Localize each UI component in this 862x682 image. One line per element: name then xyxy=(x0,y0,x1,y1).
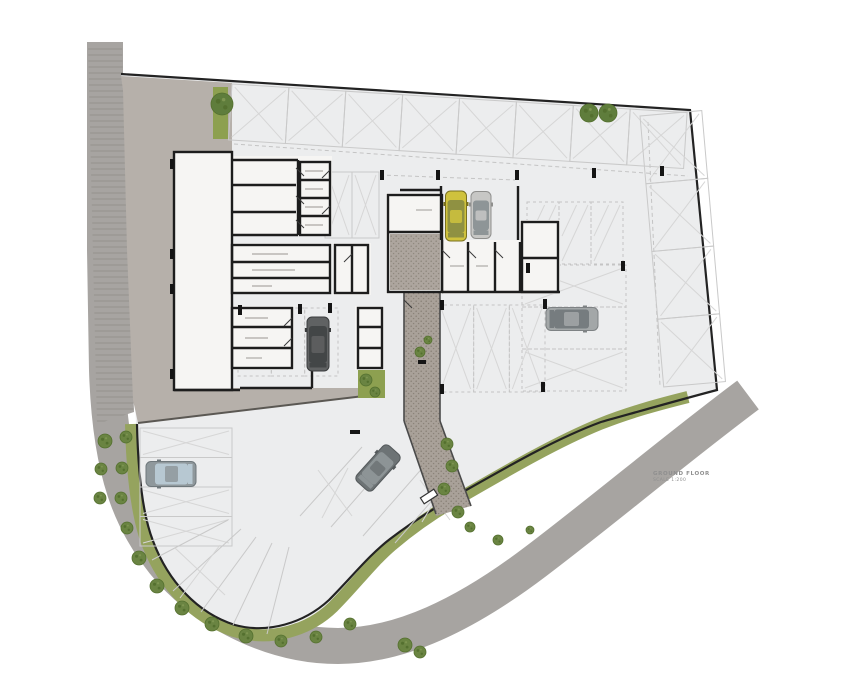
column-marker xyxy=(592,168,596,178)
bush-icon-crown xyxy=(94,492,106,504)
bush-icon xyxy=(441,438,453,450)
bush-icon xyxy=(493,535,503,545)
bush-icon-texture xyxy=(367,381,369,383)
column-marker xyxy=(621,261,625,271)
bush-icon-texture xyxy=(459,513,461,515)
column-marker xyxy=(440,300,444,310)
car-mirror xyxy=(491,203,494,207)
bush-icon-highlight xyxy=(157,582,159,584)
bush-icon xyxy=(398,638,412,652)
bush-icon-crown xyxy=(310,631,322,643)
bush-icon-texture xyxy=(124,525,127,528)
column-marker xyxy=(350,430,360,434)
bush-icon-texture xyxy=(278,638,281,641)
bush-icon xyxy=(132,551,146,565)
bush-icon xyxy=(239,629,253,643)
car xyxy=(546,306,598,333)
bush-icon xyxy=(116,462,128,474)
car-roof xyxy=(564,312,579,326)
car xyxy=(305,317,331,371)
bush-icon-highlight xyxy=(126,434,128,436)
tree-icon-highlight xyxy=(222,98,226,102)
tree-icon-texture xyxy=(584,109,588,113)
bush-icon-highlight xyxy=(452,463,454,465)
column-marker xyxy=(515,170,519,180)
bush-icon-texture xyxy=(372,390,374,392)
bush-icon-texture xyxy=(97,495,100,498)
bush-icon-highlight xyxy=(139,554,141,556)
column-marker xyxy=(418,360,426,364)
bush-icon-texture xyxy=(123,469,125,471)
bush-icon-highlight xyxy=(281,638,283,640)
car-roof xyxy=(450,210,462,223)
car-rear-glass xyxy=(448,233,464,238)
bush-icon-crown xyxy=(150,579,164,593)
bush-icon xyxy=(98,434,112,448)
car-rear-glass xyxy=(188,464,193,484)
bush-icon-texture xyxy=(495,538,497,540)
bush-icon xyxy=(446,460,458,472)
bush-icon-highlight xyxy=(405,641,407,643)
tree-icon-texture xyxy=(216,99,221,104)
tree-icon-crown xyxy=(599,104,617,122)
bush-icon-highlight xyxy=(122,465,124,467)
bush-icon-texture xyxy=(317,638,319,640)
bush-icon-texture xyxy=(158,587,161,590)
bush-icon-texture xyxy=(242,633,245,636)
car-roof xyxy=(165,466,178,482)
bush-icon-texture xyxy=(153,583,156,586)
car-mirror xyxy=(444,202,447,206)
bush-icon-texture xyxy=(213,625,216,628)
column-marker xyxy=(526,263,530,273)
bush-icon-texture xyxy=(528,528,530,530)
bush-icon-highlight xyxy=(182,604,184,606)
bush-icon-crown xyxy=(526,526,534,534)
bush-icon-texture xyxy=(102,470,104,472)
bush-icon-texture xyxy=(122,499,124,501)
column-marker xyxy=(170,159,174,169)
car-rear-glass xyxy=(474,231,489,236)
bush-icon-crown xyxy=(98,434,112,448)
bush-icon-crown xyxy=(95,463,107,475)
bush-icon-highlight xyxy=(420,649,422,651)
bush-icon-crown xyxy=(438,483,450,495)
bush-icon-texture xyxy=(471,528,473,530)
bush-icon xyxy=(175,601,189,615)
tree-icon-texture xyxy=(609,114,613,118)
bush-icon-texture xyxy=(106,442,109,445)
bush-icon-crown xyxy=(452,506,464,518)
car-mirror xyxy=(329,328,332,332)
bush-icon xyxy=(115,492,127,504)
bush-icon-crown xyxy=(398,638,412,652)
column-marker xyxy=(436,170,440,180)
car-rear-glass xyxy=(310,363,327,368)
bush-icon-texture xyxy=(428,340,430,342)
bush-icon-texture xyxy=(282,642,284,644)
column-marker xyxy=(170,249,174,259)
column-marker xyxy=(238,305,242,315)
car xyxy=(444,191,469,241)
bush-icon xyxy=(121,522,133,534)
bush-icon-crown xyxy=(465,522,475,532)
bush-icon-texture xyxy=(417,350,419,352)
stair-core xyxy=(390,234,440,290)
bush-icon-crown xyxy=(239,629,253,643)
bush-icon xyxy=(360,374,372,386)
bush-icon-highlight xyxy=(101,466,103,468)
bush-icon-crown xyxy=(120,431,132,443)
bush-icon-texture xyxy=(455,509,458,512)
car xyxy=(469,192,493,239)
bush-icon-highlight xyxy=(366,377,368,379)
bush-icon-crown xyxy=(414,646,426,658)
car-roof xyxy=(312,336,325,353)
bush-icon-texture xyxy=(183,609,186,612)
bush-icon-crown xyxy=(121,522,133,534)
tree-icon xyxy=(599,104,617,122)
bush-icon-crown xyxy=(344,618,356,630)
car-mirror xyxy=(157,486,161,489)
car-roof xyxy=(476,211,487,221)
bush-icon-crown xyxy=(446,460,458,472)
bush-icon-texture xyxy=(208,621,211,624)
plan-annotation: GROUND FLOOR SCALE 1:200 xyxy=(653,470,710,485)
building-room xyxy=(355,306,384,370)
bush-icon-highlight xyxy=(375,389,377,391)
bush-icon-texture xyxy=(140,559,143,562)
bush-icon-texture xyxy=(135,555,138,558)
tree-icon-texture xyxy=(590,114,594,118)
tree-icon-crown xyxy=(580,104,598,122)
bush-icon-highlight xyxy=(127,525,129,527)
bush-icon-texture xyxy=(441,486,444,489)
bush-icon-texture xyxy=(119,465,122,468)
bush-icon-texture xyxy=(127,438,129,440)
bush-icon-texture xyxy=(448,445,450,447)
bush-icon-crown xyxy=(415,347,425,357)
bush-icon-texture xyxy=(178,605,181,608)
column-marker xyxy=(543,299,547,309)
bush-icon-texture xyxy=(406,646,409,649)
bush-icon-highlight xyxy=(447,441,449,443)
bush-icon-texture xyxy=(101,438,104,441)
bush-icon xyxy=(438,483,450,495)
bush-icon-texture xyxy=(421,353,423,355)
bush-icon-texture xyxy=(313,634,316,637)
bush-icon-crown xyxy=(441,438,453,450)
bush-icon-highlight xyxy=(316,634,318,636)
bush-icon-crown xyxy=(205,617,219,631)
bush-icon-highlight xyxy=(212,620,214,622)
tree-icon-crown xyxy=(211,93,233,115)
building-room xyxy=(232,156,332,236)
bush-icon xyxy=(120,431,132,443)
bush-icon-texture xyxy=(351,625,353,627)
building-room xyxy=(174,152,232,390)
bush-icon-highlight xyxy=(350,621,352,623)
tree-icon-highlight xyxy=(608,108,611,111)
bush-icon-texture xyxy=(347,621,350,624)
bush-icon-texture xyxy=(363,377,366,380)
tree-icon-texture xyxy=(603,109,607,113)
bush-icon-texture xyxy=(449,463,452,466)
bush-icon-highlight xyxy=(105,437,107,439)
bush-icon-texture xyxy=(499,541,501,543)
column-marker xyxy=(660,166,664,176)
tree-icon xyxy=(211,93,233,115)
bush-icon-highlight xyxy=(121,495,123,497)
bush-icon-texture xyxy=(421,653,423,655)
plan-scale: SCALE 1:200 xyxy=(653,478,710,485)
bush-icon-texture xyxy=(401,642,404,645)
bush-icon-texture xyxy=(417,649,420,652)
car-mirror xyxy=(583,306,587,309)
bush-icon xyxy=(344,618,356,630)
bush-icon-highlight xyxy=(246,632,248,634)
car-mirror xyxy=(469,203,472,207)
column-marker xyxy=(380,170,384,180)
bush-icon-crown xyxy=(424,336,432,344)
bush-icon xyxy=(205,617,219,631)
bush-icon xyxy=(275,635,287,647)
tree-icon-texture xyxy=(223,105,227,109)
column-marker xyxy=(328,303,332,313)
bush-icon xyxy=(150,579,164,593)
bush-icon xyxy=(415,347,425,357)
bush-icon-highlight xyxy=(470,524,472,526)
bush-icon-crown xyxy=(116,462,128,474)
bush-icon-crown xyxy=(493,535,503,545)
bush-icon-texture xyxy=(123,434,126,437)
car xyxy=(146,460,196,489)
bush-icon-texture xyxy=(98,466,101,469)
site-plan-svg xyxy=(0,0,862,682)
bush-icon-crown xyxy=(275,635,287,647)
building-room xyxy=(232,243,332,293)
bush-icon xyxy=(94,492,106,504)
column-marker xyxy=(440,384,444,394)
bush-icon-texture xyxy=(128,529,130,531)
bush-icon-texture xyxy=(118,495,121,498)
bush-icon-texture xyxy=(453,467,455,469)
car-mirror xyxy=(466,202,469,206)
bush-icon-highlight xyxy=(498,537,500,539)
bush-icon xyxy=(370,387,380,397)
bush-icon-crown xyxy=(115,492,127,504)
bush-icon xyxy=(465,522,475,532)
bush-icon xyxy=(95,463,107,475)
car-rear-glass xyxy=(550,310,555,328)
tree-icon xyxy=(580,104,598,122)
car-mirror xyxy=(583,330,587,333)
bush-icon-texture xyxy=(426,338,428,340)
bush-icon-crown xyxy=(175,601,189,615)
bush-icon xyxy=(310,631,322,643)
bush-icon-highlight xyxy=(530,528,531,529)
bush-icon-highlight xyxy=(458,509,460,511)
bush-icon-texture xyxy=(530,530,532,532)
column-marker xyxy=(298,304,302,314)
bush-icon xyxy=(452,506,464,518)
plan-title: GROUND FLOOR xyxy=(653,470,710,478)
bush-icon-highlight xyxy=(420,349,422,351)
bush-icon xyxy=(526,526,534,534)
column-marker xyxy=(170,369,174,379)
bush-icon xyxy=(414,646,426,658)
bush-icon-texture xyxy=(444,441,447,444)
column-marker xyxy=(541,382,545,392)
car-mirror xyxy=(157,460,161,463)
bush-icon-highlight xyxy=(444,486,446,488)
bush-icon-highlight xyxy=(428,338,429,339)
tree-icon-highlight xyxy=(589,108,592,111)
bush-icon-texture xyxy=(247,637,250,640)
car-mirror xyxy=(305,328,308,332)
bush-icon-crown xyxy=(132,551,146,565)
bush-icon-texture xyxy=(445,490,447,492)
bush-icon xyxy=(424,336,432,344)
bush-icon-crown xyxy=(360,374,372,386)
bush-icon-texture xyxy=(101,499,103,501)
bush-icon-texture xyxy=(467,525,469,527)
bush-icon-crown xyxy=(370,387,380,397)
floor-plan-page: GROUND FLOOR SCALE 1:200 xyxy=(0,0,862,682)
bush-icon-texture xyxy=(376,393,378,395)
bush-icon-highlight xyxy=(100,495,102,497)
column-marker xyxy=(170,284,174,294)
